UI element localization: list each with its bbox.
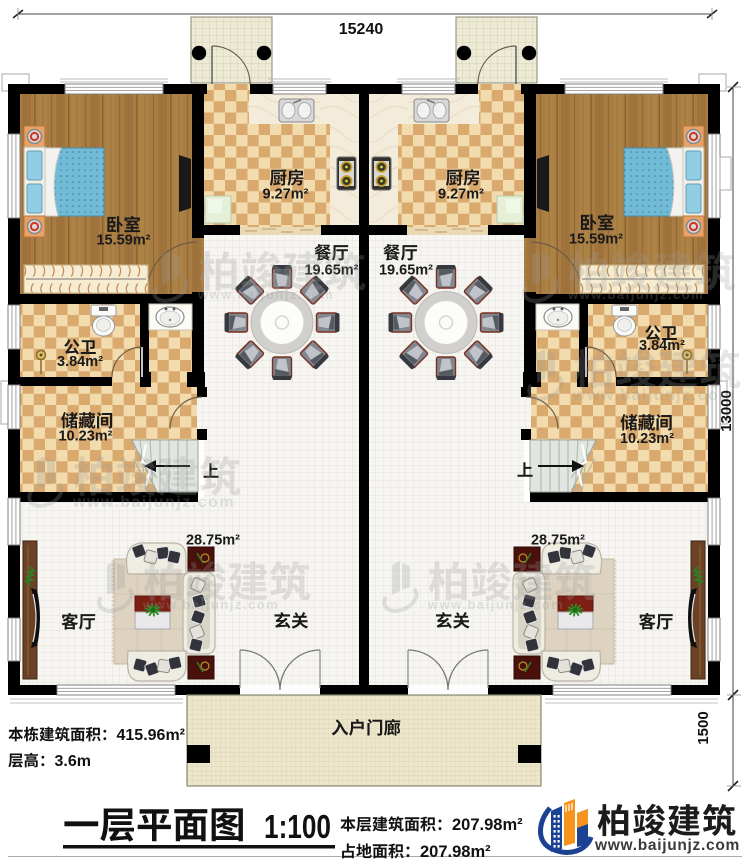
svg-text:www.baijunjz.com: www.baijunjz.com [567, 287, 704, 302]
svg-text:10.23m²: 10.23m² [620, 431, 674, 447]
svg-text:www.baijunjz.com: www.baijunjz.com [594, 837, 740, 854]
svg-text:15.59m²: 15.59m² [96, 233, 150, 249]
svg-text:207.98m²: 207.98m² [452, 816, 523, 834]
svg-text:1:100: 1:100 [264, 808, 331, 845]
svg-text:28.75m²: 28.75m² [531, 533, 585, 549]
svg-text:www.baijunjz.com: www.baijunjz.com [142, 597, 279, 612]
svg-text:www.baijunjz.com: www.baijunjz.com [572, 387, 735, 404]
svg-text:10.23m²: 10.23m² [58, 429, 112, 445]
svg-text:1500: 1500 [695, 711, 712, 744]
svg-text:www.baijunjz.com: www.baijunjz.com [427, 597, 564, 612]
svg-text:9.27m²: 9.27m² [263, 187, 309, 203]
svg-text:28.75m²: 28.75m² [186, 533, 240, 549]
svg-text:415.96m²: 415.96m² [117, 727, 186, 744]
svg-text:www.baijunjz.com: www.baijunjz.com [197, 287, 334, 302]
svg-text:207.98m²: 207.98m² [420, 843, 491, 861]
svg-text:9.27m²: 9.27m² [438, 187, 484, 203]
svg-text:3.84m²: 3.84m² [57, 354, 103, 370]
svg-text:15240: 15240 [339, 21, 384, 38]
svg-text:3.6m: 3.6m [55, 753, 91, 770]
svg-text:15.59m²: 15.59m² [569, 232, 623, 248]
svg-text:www.baijunjz.com: www.baijunjz.com [72, 494, 235, 511]
svg-text:19.65m²: 19.65m² [379, 263, 433, 279]
